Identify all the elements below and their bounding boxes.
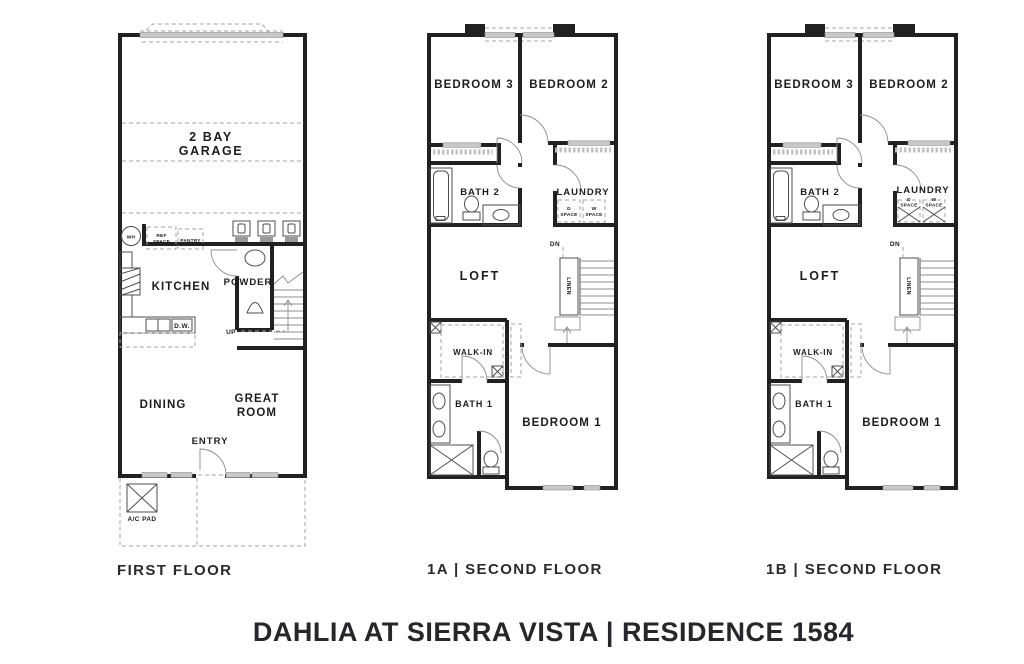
room-label-garage-line1: 2 BAY (189, 130, 233, 144)
label-washer-line1: W (932, 197, 937, 203)
label-dryer-line1: D (907, 197, 911, 203)
room-label-walk-in: WALK-IN (793, 348, 833, 357)
second-floor-plan-1b: BEDROOM 3 BEDROOM 2 BATH 2 LAUNDRY D SPA… (757, 15, 969, 505)
garage-door-symbol (140, 33, 283, 38)
label-ref-space-line1: REF (156, 233, 166, 239)
room-label-dining: DINING (140, 399, 187, 411)
room-label-walk-in: WALK-IN (453, 348, 493, 357)
room-label-bath2: BATH 2 (800, 187, 840, 198)
first-floor-plan: 2 BAY GARAGE WH REF SPACE PANTRY KITCHEN… (100, 8, 320, 568)
room-label-great-line2: ROOM (237, 407, 277, 419)
room-label-bath1: BATH 1 (795, 399, 833, 409)
room-label-bath2: BATH 2 (460, 187, 500, 198)
second-floor-plan-1a: BEDROOM 3 BEDROOM 2 BATH 2 LAUNDRY D SPA… (417, 15, 629, 505)
caption-second-floor-1a: 1A | SECOND FLOOR (427, 561, 603, 578)
label-ac-pad: A/C PAD (127, 516, 156, 523)
label-washer-line2: SPACE (585, 212, 603, 218)
utility-boxes (233, 221, 300, 242)
room-label-bedroom2: BEDROOM 2 (529, 79, 609, 91)
range-symbol (120, 268, 140, 295)
label-dryer-line2: SPACE (560, 212, 578, 218)
room-label-entry: ENTRY (192, 436, 229, 447)
label-washer-line1: W (592, 206, 597, 212)
label-dn: DN (890, 241, 900, 248)
sheet-title: DAHLIA AT SIERRA VISTA | RESIDENCE 1584 (83, 617, 1024, 648)
room-label-bedroom1: BEDROOM 1 (522, 417, 602, 429)
kitchen-counters (120, 252, 195, 347)
label-dryer-line2: SPACE (900, 203, 918, 209)
room-label-kitchen: KITCHEN (152, 281, 211, 293)
room-label-laundry: LAUNDRY (556, 187, 609, 198)
caption-second-floor-1b: 1B | SECOND FLOOR (766, 561, 942, 578)
room-label-garage-line2: GARAGE (179, 144, 243, 158)
room-label-great-line1: GREAT (235, 393, 280, 405)
garage-floor-lines (122, 42, 303, 213)
label-dryer-line1: D (567, 206, 571, 212)
room-label-bedroom3: BEDROOM 3 (434, 79, 514, 91)
floor-plan-sheet: 2 BAY GARAGE WH REF SPACE PANTRY KITCHEN… (0, 0, 1024, 664)
label-up: UP (226, 329, 236, 336)
caption-first-floor: FIRST FLOOR (117, 562, 232, 579)
label-water-heater: WH (127, 235, 136, 241)
label-linen: LINEN (905, 277, 911, 295)
entry-wall-windows (142, 470, 278, 479)
label-linen: LINEN (565, 277, 571, 295)
room-label-loft: LOFT (460, 269, 501, 283)
pedestal-sink-symbol (247, 303, 263, 314)
room-label-bedroom1: BEDROOM 1 (862, 417, 942, 429)
label-dn: DN (550, 241, 560, 248)
room-label-loft: LOFT (800, 269, 841, 283)
room-label-bedroom3: BEDROOM 3 (774, 79, 854, 91)
room-label-laundry: LAUNDRY (896, 185, 949, 196)
washer-dryer-spaces (558, 200, 605, 222)
label-washer-line2: SPACE (925, 203, 943, 209)
room-label-bedroom2: BEDROOM 2 (869, 79, 949, 91)
room-label-powder: POWDER (224, 277, 273, 288)
label-dishwasher: D.W. (174, 323, 190, 330)
room-label-bath1: BATH 1 (455, 399, 493, 409)
kitchen-sink-symbol (146, 319, 170, 331)
ac-pad-symbol (127, 484, 157, 512)
label-pantry: PANTRY (180, 238, 201, 244)
label-ref-space-line2: SPACE (153, 239, 171, 245)
